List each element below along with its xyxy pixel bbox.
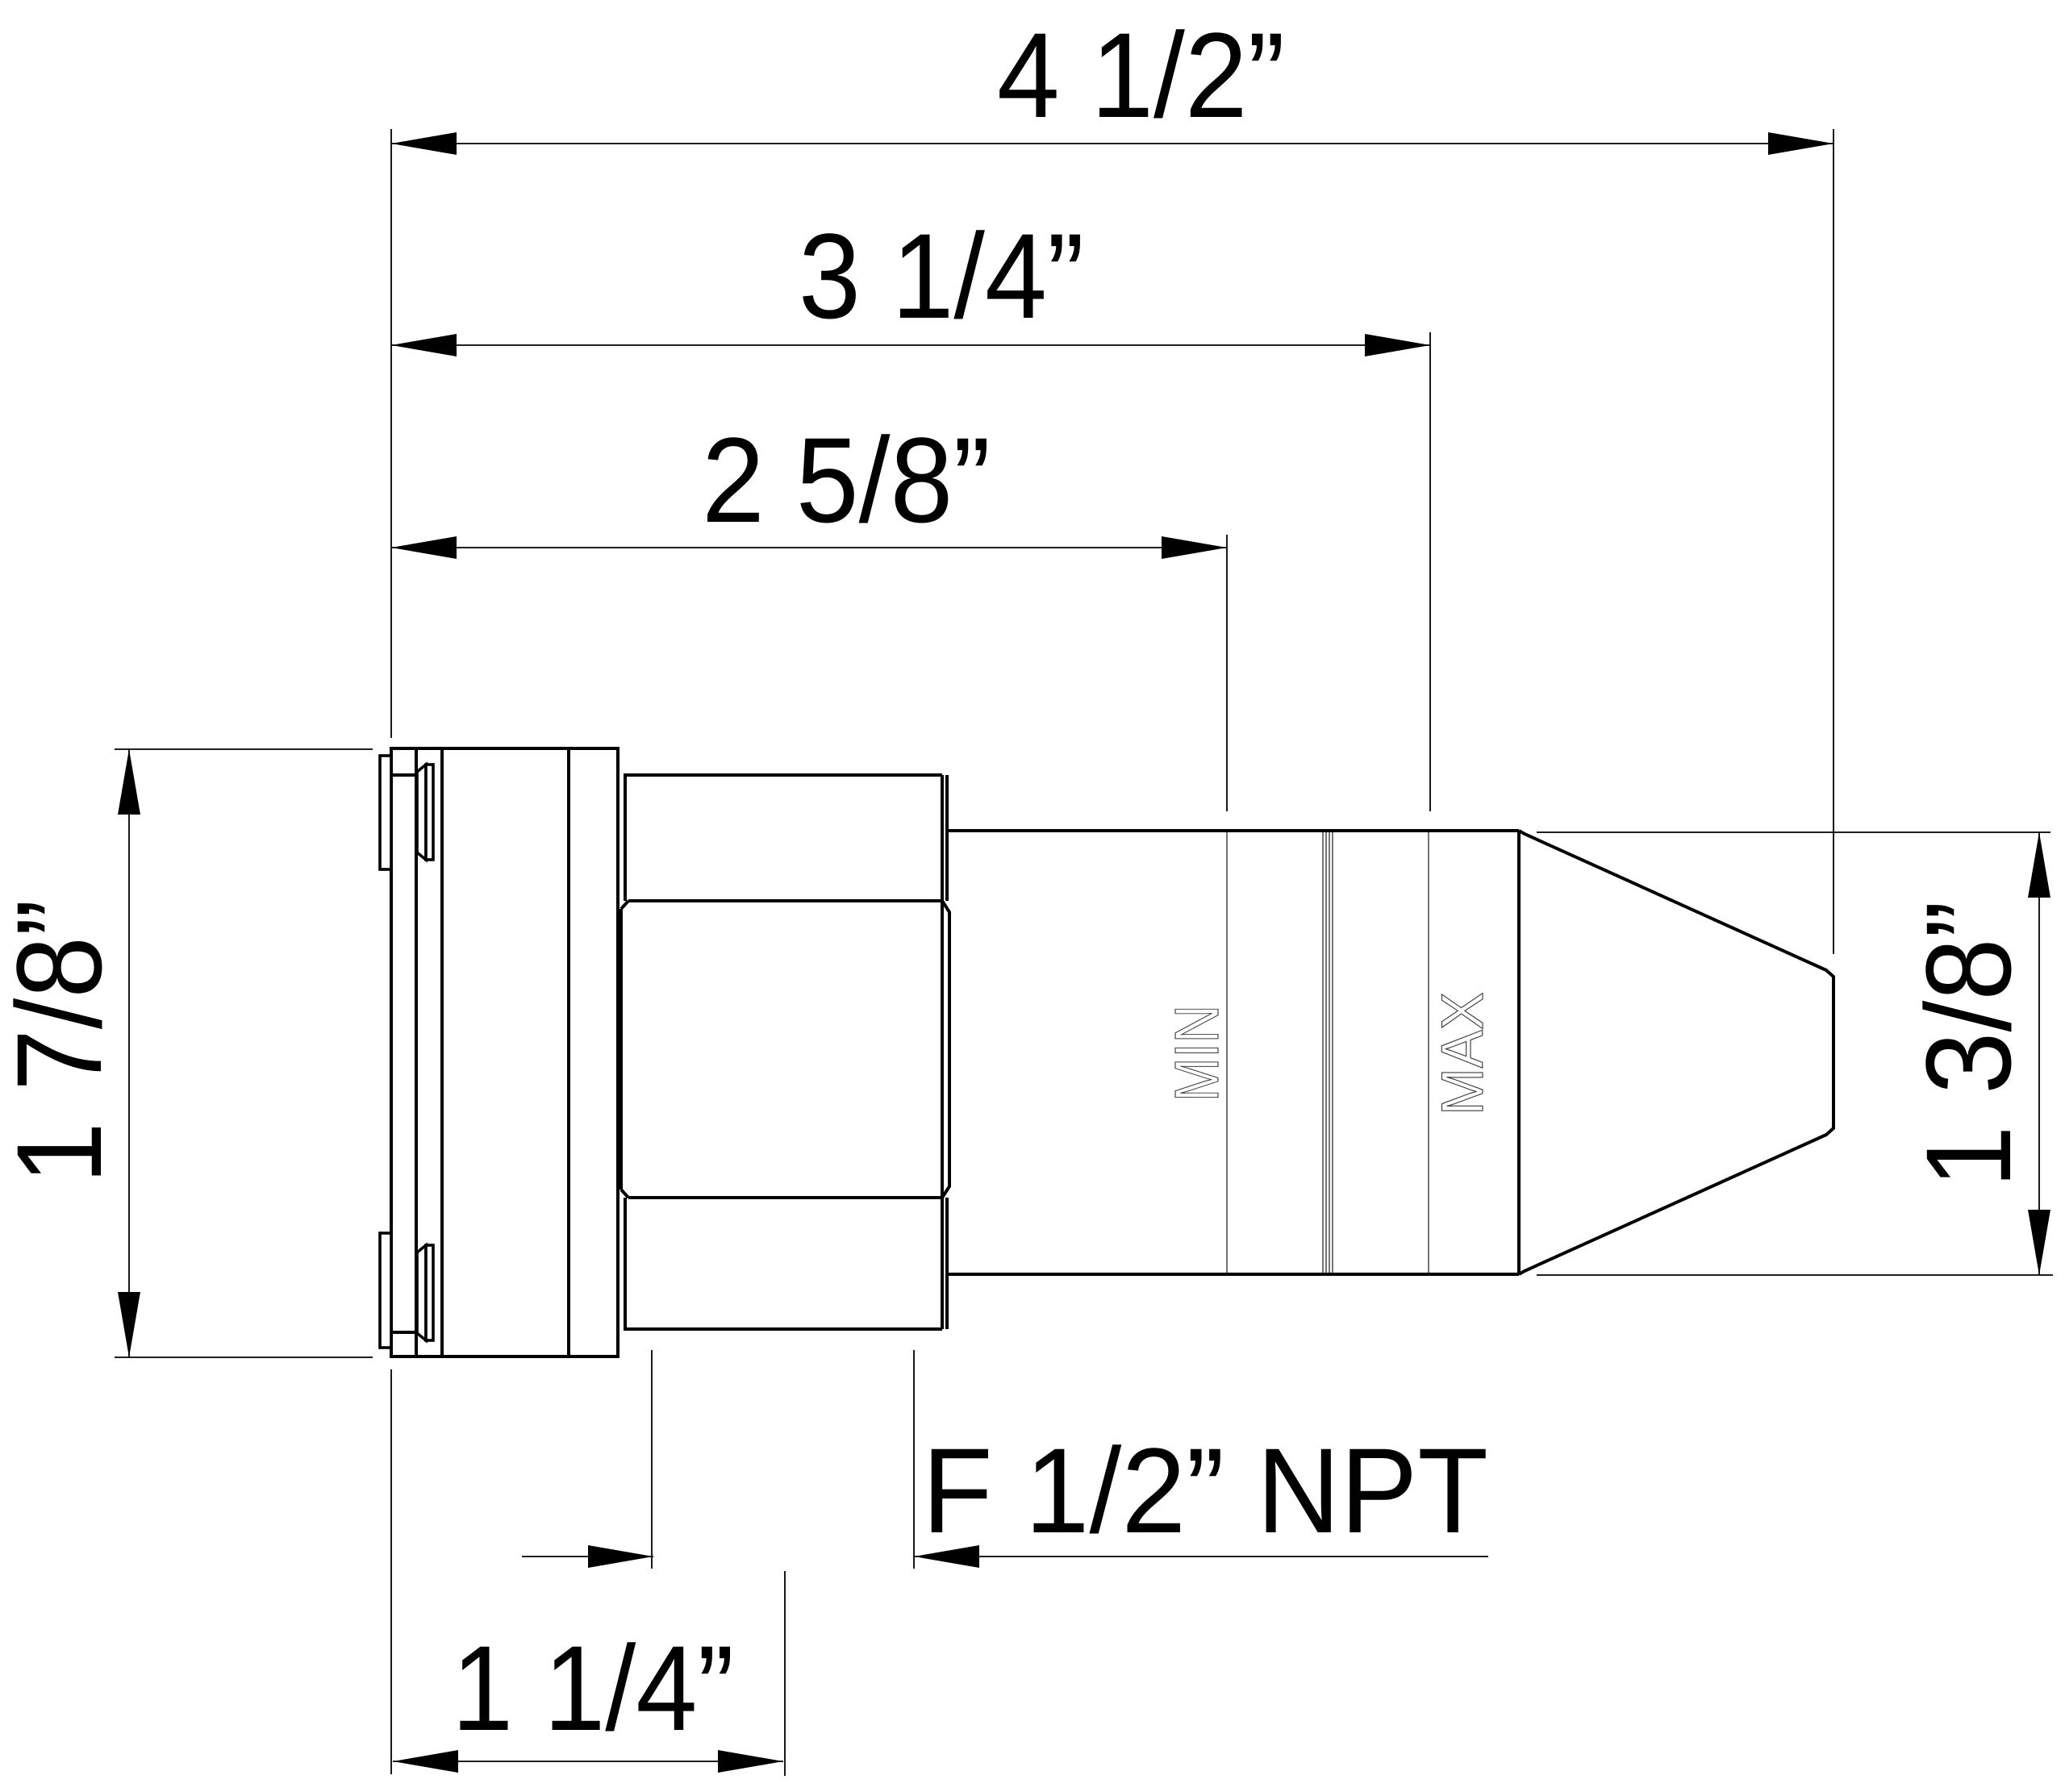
svg-text:1 1/4”: 1 1/4” <box>452 1620 734 1756</box>
svg-text:1 7/8”: 1 7/8” <box>0 899 127 1184</box>
svg-text:F 1/2” NPT: F 1/2” NPT <box>922 1423 1488 1558</box>
svg-text:1 3/8”: 1 3/8” <box>1900 901 2036 1188</box>
svg-text:MAX: MAX <box>1430 992 1496 1115</box>
svg-text:3 1/4”: 3 1/4” <box>799 208 1084 344</box>
svg-text:4 1/2”: 4 1/2” <box>997 7 1285 143</box>
svg-text:MIN: MIN <box>1162 1005 1232 1102</box>
svg-text:2 5/8”: 2 5/8” <box>702 412 991 548</box>
